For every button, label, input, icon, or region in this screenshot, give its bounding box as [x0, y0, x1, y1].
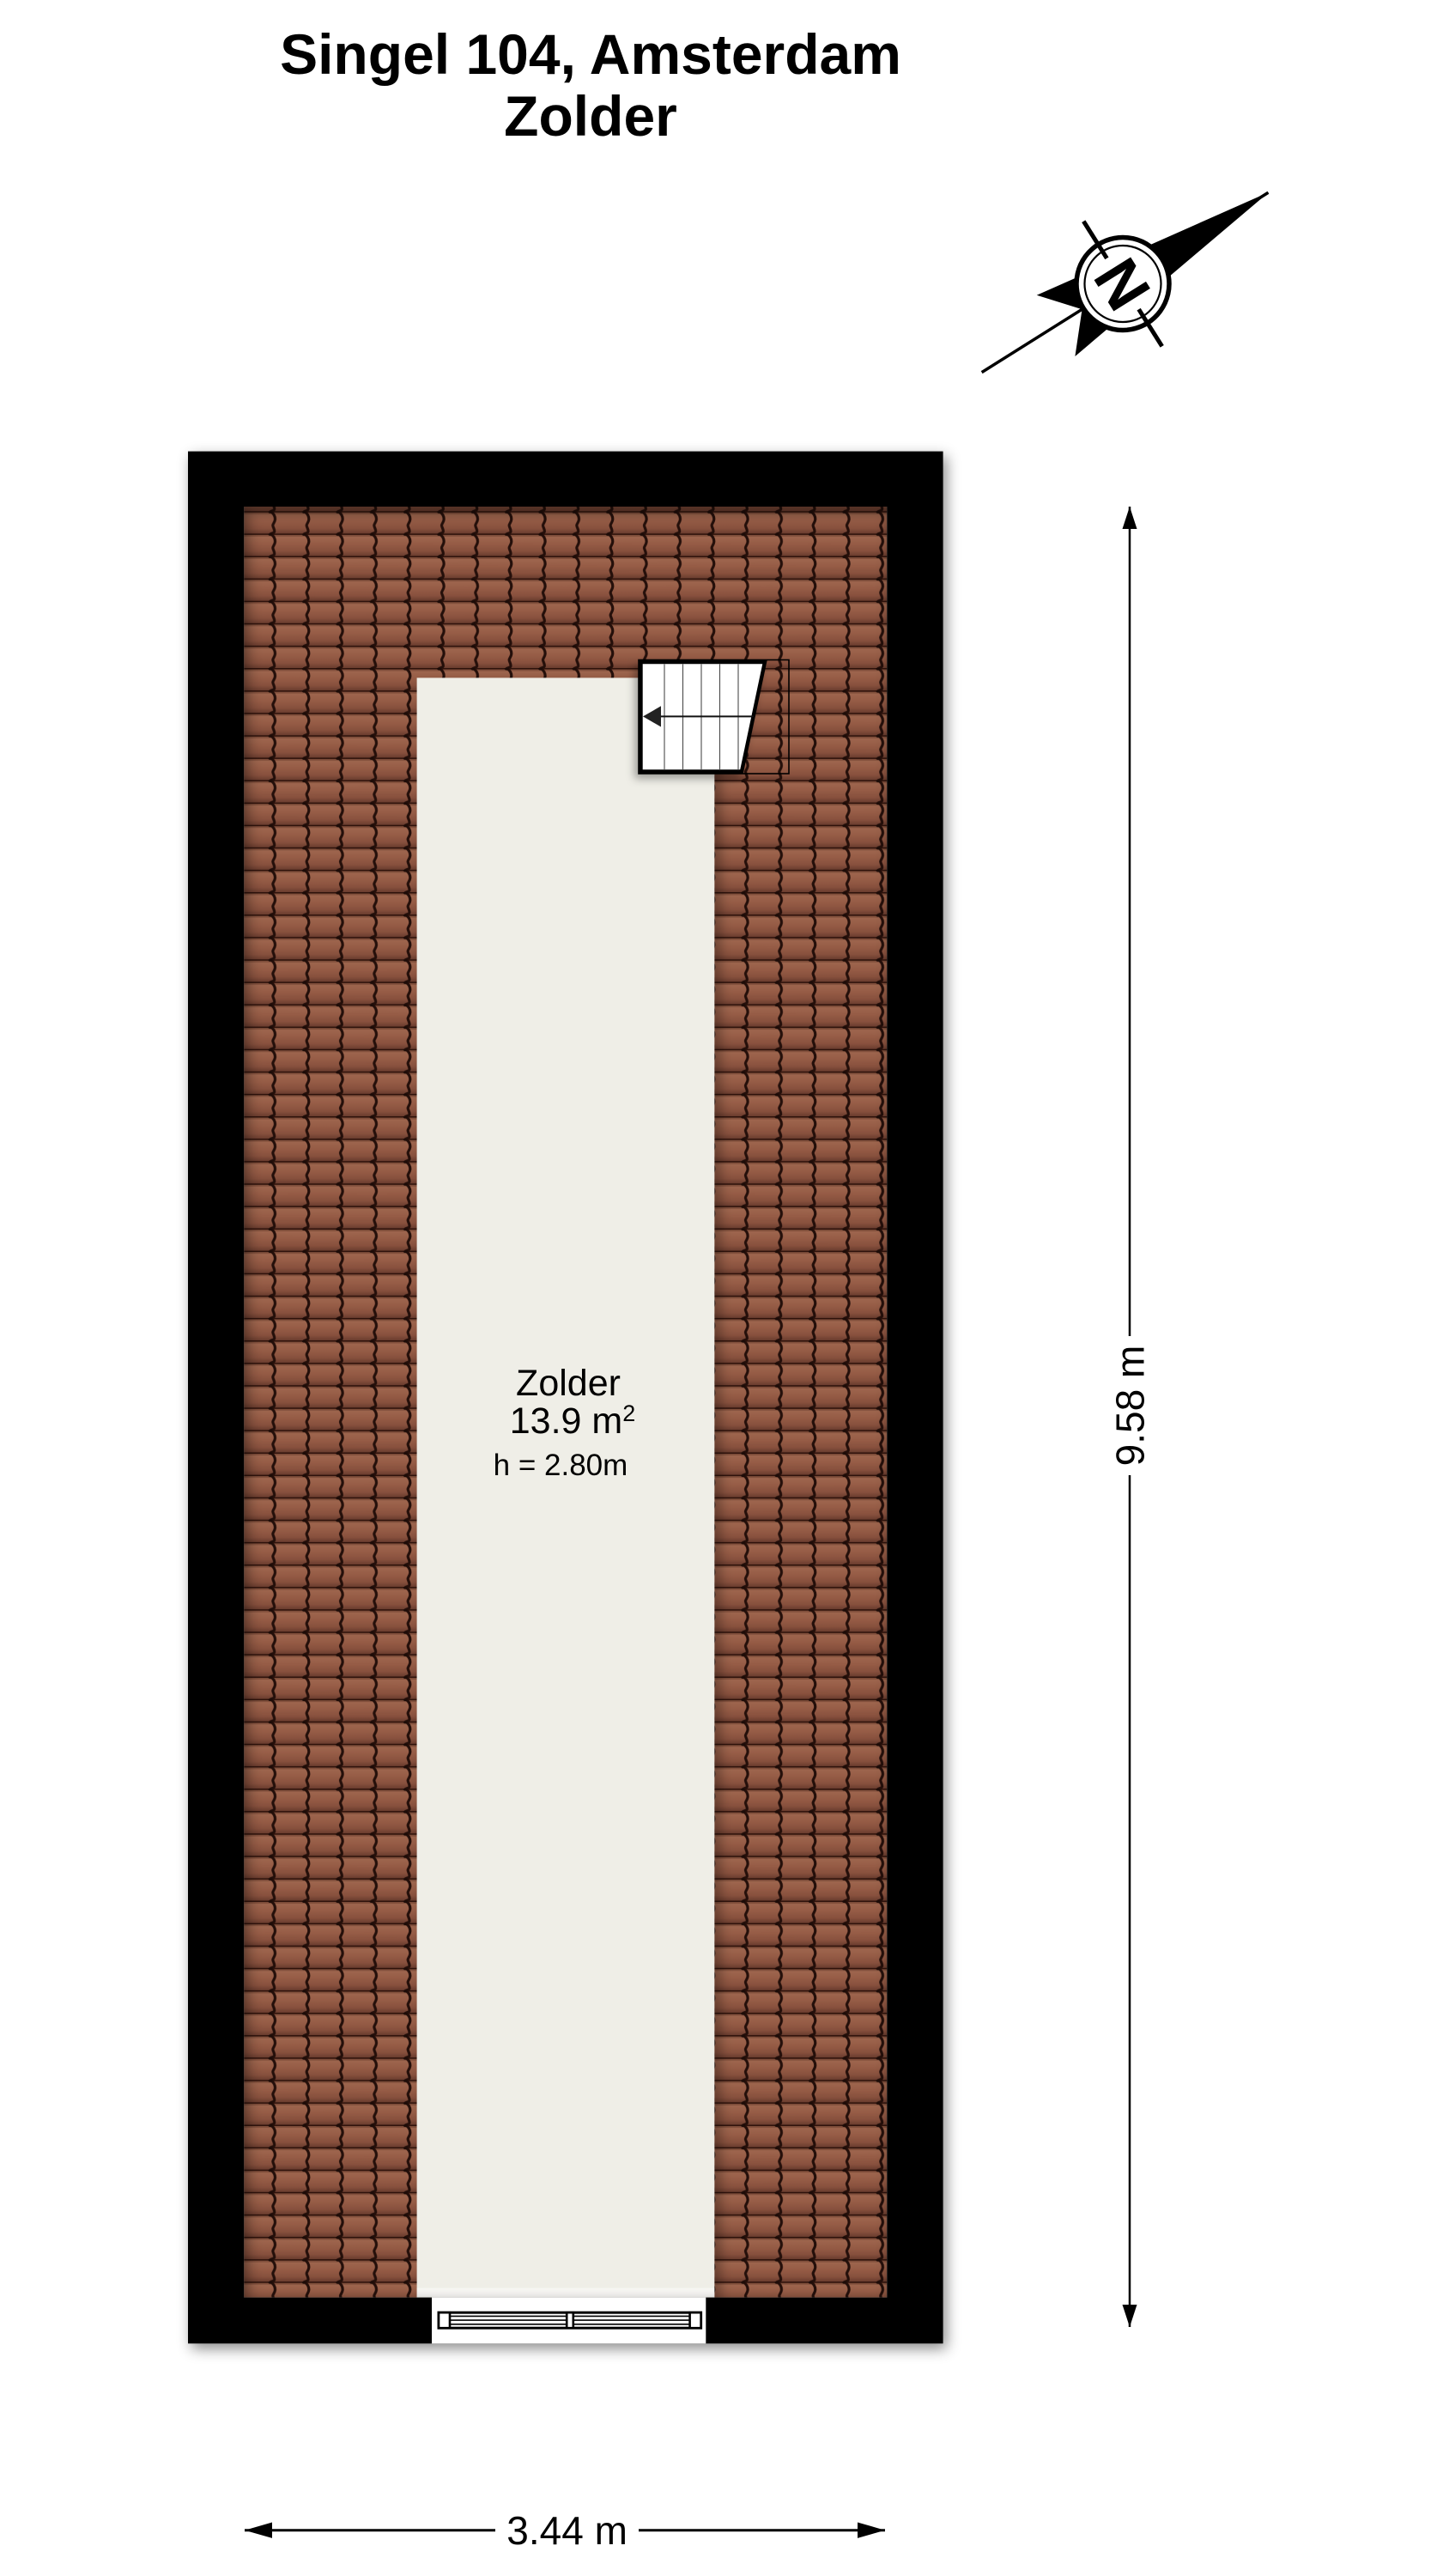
svg-text:3.44 m: 3.44 m [506, 2508, 627, 2553]
svg-text:9.58 m: 9.58 m [1108, 1346, 1153, 1467]
svg-text:Zolder: Zolder [504, 84, 677, 148]
svg-text:h = 2.80m: h = 2.80m [494, 1449, 628, 1482]
svg-text:Zolder: Zolder [516, 1363, 621, 1404]
svg-text:Singel 104, Amsterdam: Singel 104, Amsterdam [280, 22, 901, 86]
svg-text:13.9 m2: 13.9 m2 [510, 1400, 636, 1442]
